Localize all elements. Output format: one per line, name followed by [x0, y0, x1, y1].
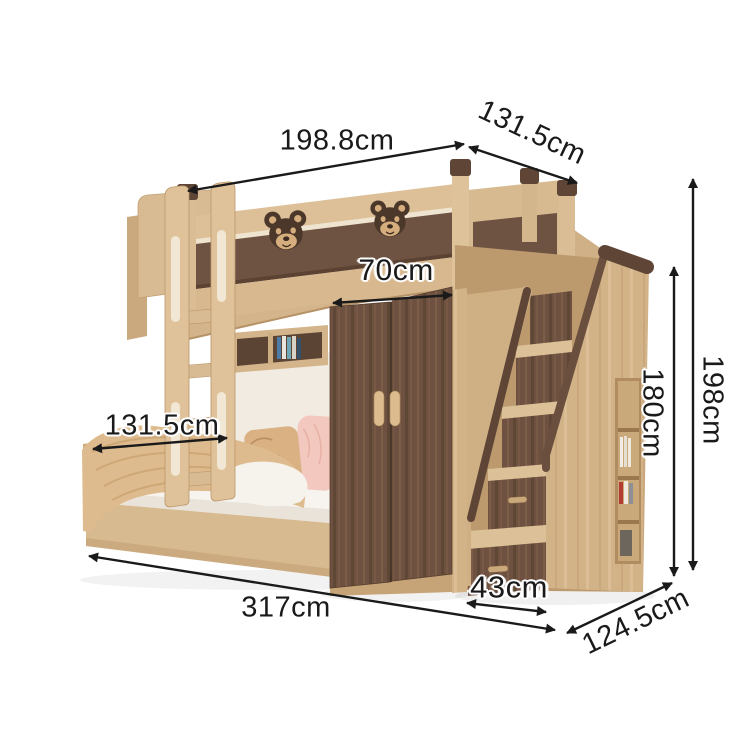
- wardrobe-side-frame: [452, 288, 467, 593]
- dim-label-total-length: 317cm: [241, 594, 331, 623]
- door-handle: [374, 391, 384, 426]
- hanging-shelf: [231, 325, 328, 373]
- dim-label-lower-bed-width: 131.5cm: [105, 412, 220, 441]
- product-dimension-diagram: 198.8cm 131.5cm 70cm 131.5cm 43cm 317cm …: [0, 0, 750, 750]
- staircase: [455, 245, 649, 596]
- dim-label-upper-bed-length: 198.8cm: [280, 127, 395, 156]
- dim-label-wardrobe-width: 70cm: [358, 256, 433, 286]
- dim-label-staircase-height: 180cm: [638, 368, 667, 458]
- books: [619, 436, 633, 556]
- books: [277, 336, 301, 359]
- wardrobe-door-right: [392, 287, 452, 581]
- door-handle: [390, 391, 400, 426]
- dim-label-total-height: 198cm: [698, 355, 727, 445]
- drawer-handle: [508, 496, 527, 503]
- wardrobe: [330, 287, 467, 596]
- dim-label-stair-drawer-width: 43cm: [470, 572, 548, 603]
- wardrobe-door-left: [330, 302, 390, 588]
